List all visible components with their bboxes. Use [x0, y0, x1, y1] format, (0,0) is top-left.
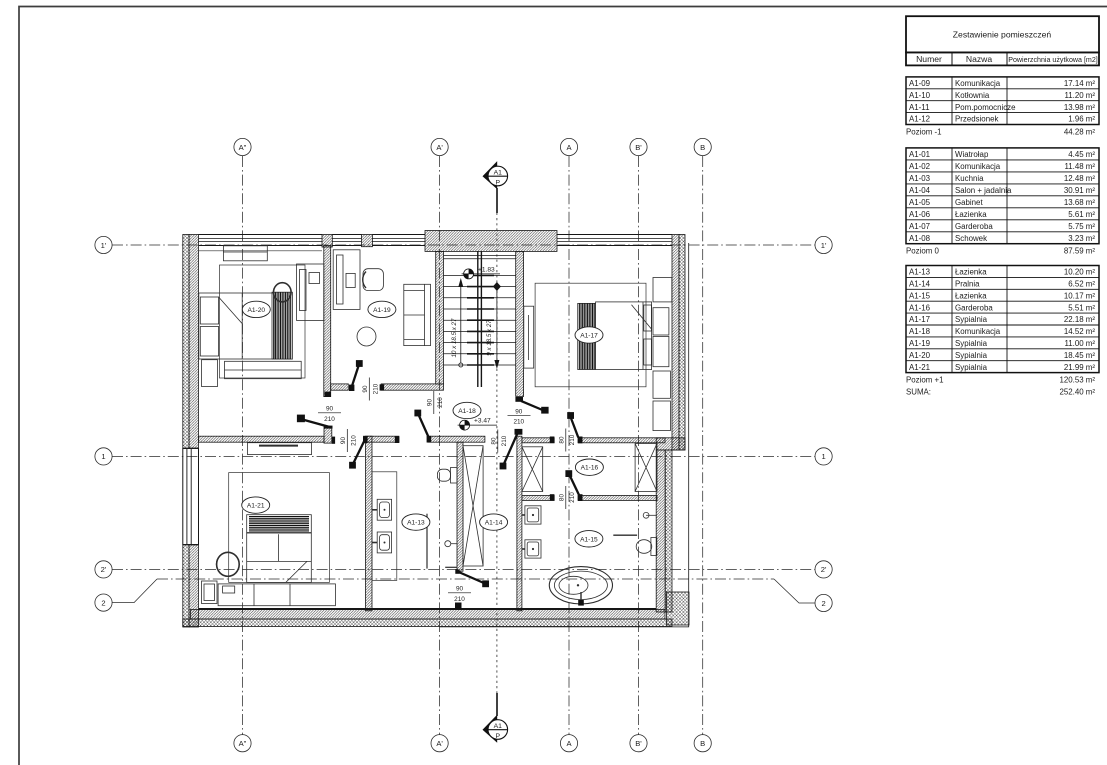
svg-text:A1-02: A1-02	[909, 162, 930, 171]
svg-text:Wiatrołap: Wiatrołap	[955, 150, 989, 159]
svg-text:13.68 m²: 13.68 m²	[1064, 198, 1096, 207]
svg-text:80: 80	[559, 436, 566, 444]
svg-text:1': 1'	[821, 241, 827, 250]
svg-text:18.45 m²: 18.45 m²	[1064, 351, 1096, 360]
svg-text:B: B	[700, 739, 705, 748]
svg-text:Łazienka: Łazienka	[955, 268, 987, 277]
svg-text:A1-13: A1-13	[407, 520, 425, 527]
svg-text:13.98 m²: 13.98 m²	[1064, 103, 1096, 112]
svg-text:A1-19: A1-19	[373, 307, 391, 314]
svg-text:210: 210	[372, 383, 379, 394]
svg-text:A1-20: A1-20	[247, 307, 265, 314]
svg-text:90: 90	[456, 586, 464, 593]
svg-text:6.52 m²: 6.52 m²	[1068, 280, 1095, 289]
svg-text:1': 1'	[101, 241, 107, 250]
svg-text:A': A'	[436, 739, 443, 748]
svg-text:80: 80	[559, 494, 566, 502]
svg-text:Schowek: Schowek	[955, 234, 987, 243]
svg-text:A1-09: A1-09	[909, 79, 931, 88]
svg-text:+1.83: +1.83	[478, 267, 495, 274]
svg-text:Poziom 0: Poziom 0	[906, 247, 940, 256]
svg-text:210: 210	[350, 435, 357, 446]
svg-text:A1-19: A1-19	[909, 339, 931, 348]
svg-text:A1-18: A1-18	[458, 408, 476, 415]
svg-text:Komunikacja: Komunikacja	[955, 327, 1001, 336]
svg-text:Komunikacja: Komunikacja	[955, 162, 1001, 171]
svg-text:Garderoba: Garderoba	[955, 303, 993, 312]
svg-text:2: 2	[101, 598, 105, 607]
svg-text:A1-04: A1-04	[909, 186, 931, 195]
svg-text:210: 210	[454, 596, 465, 603]
svg-text:Przedsionek: Przedsionek	[955, 115, 998, 124]
svg-text:Zestawienie pomieszczeń: Zestawienie pomieszczeń	[953, 30, 1052, 40]
svg-text:A1-10: A1-10	[909, 91, 931, 100]
svg-text:80: 80	[491, 437, 498, 445]
svg-text:21.99 m²: 21.99 m²	[1064, 363, 1096, 372]
svg-text:P: P	[496, 733, 501, 740]
svg-text:11.20 m²: 11.20 m²	[1064, 91, 1095, 100]
svg-text:44.28 m²: 44.28 m²	[1064, 128, 1096, 137]
svg-text:5.75 m²: 5.75 m²	[1068, 222, 1095, 231]
svg-text:210: 210	[437, 397, 444, 408]
svg-text:5.61 m²: 5.61 m²	[1068, 210, 1095, 219]
svg-text:11.48 m²: 11.48 m²	[1064, 162, 1095, 171]
svg-text:A": A"	[239, 143, 247, 152]
svg-text:252.40 m²: 252.40 m²	[1059, 387, 1095, 396]
svg-text:B': B'	[635, 143, 642, 152]
svg-text:A1-07: A1-07	[909, 222, 930, 231]
svg-text:2: 2	[821, 599, 825, 608]
svg-text:A1-21: A1-21	[247, 503, 265, 510]
svg-text:87.59 m²: 87.59 m²	[1064, 247, 1096, 256]
svg-text:11.00 m²: 11.00 m²	[1064, 339, 1095, 348]
svg-text:5.51 m²: 5.51 m²	[1068, 303, 1095, 312]
svg-text:210: 210	[569, 492, 576, 503]
svg-text:3.23 m²: 3.23 m²	[1068, 234, 1095, 243]
svg-text:A1-05: A1-05	[909, 198, 931, 207]
svg-text:Komunikacja: Komunikacja	[955, 79, 1001, 88]
svg-text:90: 90	[326, 406, 334, 413]
svg-text:Salon + jadalnia: Salon + jadalnia	[955, 186, 1012, 195]
svg-text:2': 2'	[821, 565, 827, 574]
svg-text:A1-01: A1-01	[909, 150, 930, 159]
svg-text:B: B	[700, 143, 705, 152]
svg-text:A1: A1	[494, 723, 503, 730]
svg-text:90: 90	[427, 399, 434, 407]
svg-text:+3.47: +3.47	[474, 418, 491, 425]
svg-text:210: 210	[513, 419, 524, 426]
svg-text:Nazwa: Nazwa	[966, 54, 992, 64]
svg-text:A1-16: A1-16	[909, 303, 931, 312]
svg-text:1.96 m²: 1.96 m²	[1068, 115, 1095, 124]
svg-text:Sypialnia: Sypialnia	[955, 315, 988, 324]
svg-text:210: 210	[501, 435, 508, 446]
svg-text:SUMA:: SUMA:	[906, 387, 931, 396]
svg-text:120.53 m²: 120.53 m²	[1059, 375, 1095, 384]
svg-text:A1-13: A1-13	[909, 268, 931, 277]
svg-text:1: 1	[821, 452, 825, 461]
svg-text:Sypialnia: Sypialnia	[955, 351, 988, 360]
svg-text:10.17 m²: 10.17 m²	[1064, 291, 1096, 300]
svg-text:Sypialnia: Sypialnia	[955, 363, 988, 372]
svg-text:210: 210	[324, 416, 335, 423]
svg-text:A1-15: A1-15	[909, 291, 931, 300]
svg-text:30.91 m²: 30.91 m²	[1064, 186, 1096, 195]
svg-text:A": A"	[239, 739, 247, 748]
svg-text:90: 90	[515, 408, 523, 415]
svg-text:Łazienka: Łazienka	[955, 210, 987, 219]
svg-text:A1-03: A1-03	[909, 174, 931, 183]
svg-text:2': 2'	[101, 565, 107, 574]
svg-text:B': B'	[635, 739, 642, 748]
svg-text:Łazienka: Łazienka	[955, 291, 987, 300]
svg-text:A1-08: A1-08	[909, 234, 931, 243]
svg-text:A1-06: A1-06	[909, 210, 931, 219]
svg-text:90: 90	[340, 437, 347, 445]
svg-text:Numer: Numer	[916, 54, 942, 64]
svg-text:A': A'	[436, 143, 443, 152]
svg-text:Kuchnia: Kuchnia	[955, 174, 984, 183]
svg-text:A1-16: A1-16	[581, 465, 599, 472]
svg-text:A1-11: A1-11	[909, 103, 929, 112]
svg-text:A1-14: A1-14	[485, 520, 503, 527]
svg-text:Pralnia: Pralnia	[955, 280, 980, 289]
svg-text:A1-21: A1-21	[909, 363, 930, 372]
svg-text:10 x 18.5 x 27: 10 x 18.5 x 27	[451, 318, 458, 357]
svg-text:A1-12: A1-12	[909, 115, 930, 124]
svg-text:A1-18: A1-18	[909, 327, 931, 336]
svg-text:Gabinet: Gabinet	[955, 198, 983, 207]
svg-text:A1-15: A1-15	[580, 536, 598, 543]
svg-text:1: 1	[101, 452, 105, 461]
svg-text:A1-17: A1-17	[909, 315, 930, 324]
svg-text:Garderoba: Garderoba	[955, 222, 993, 231]
svg-text:A1-20: A1-20	[909, 351, 931, 360]
svg-text:210: 210	[569, 434, 576, 445]
svg-text:10.20 m²: 10.20 m²	[1064, 268, 1096, 277]
svg-text:P: P	[496, 180, 501, 187]
svg-text:A1-17: A1-17	[580, 333, 598, 340]
svg-text:A1-14: A1-14	[909, 280, 931, 289]
svg-text:A1: A1	[494, 169, 503, 176]
svg-text:90: 90	[362, 385, 369, 393]
svg-text:Kotłownia: Kotłownia	[955, 91, 990, 100]
svg-text:17.14 m²: 17.14 m²	[1064, 79, 1096, 88]
svg-text:Powierzchnia użytkowa [m2]: Powierzchnia użytkowa [m2]	[1008, 56, 1098, 64]
svg-text:22.18 m²: 22.18 m²	[1064, 315, 1096, 324]
svg-text:Sypialnia: Sypialnia	[955, 339, 988, 348]
svg-text:14.52 m²: 14.52 m²	[1064, 327, 1096, 336]
svg-text:Pom.pomocnicze: Pom.pomocnicze	[955, 103, 1016, 112]
svg-text:Poziom -1: Poziom -1	[906, 128, 942, 137]
svg-text:9 x 18.5 x 27: 9 x 18.5 x 27	[486, 320, 493, 356]
svg-text:Poziom +1: Poziom +1	[906, 375, 944, 384]
svg-text:4.45 m²: 4.45 m²	[1068, 150, 1095, 159]
svg-text:12.48 m²: 12.48 m²	[1064, 174, 1096, 183]
